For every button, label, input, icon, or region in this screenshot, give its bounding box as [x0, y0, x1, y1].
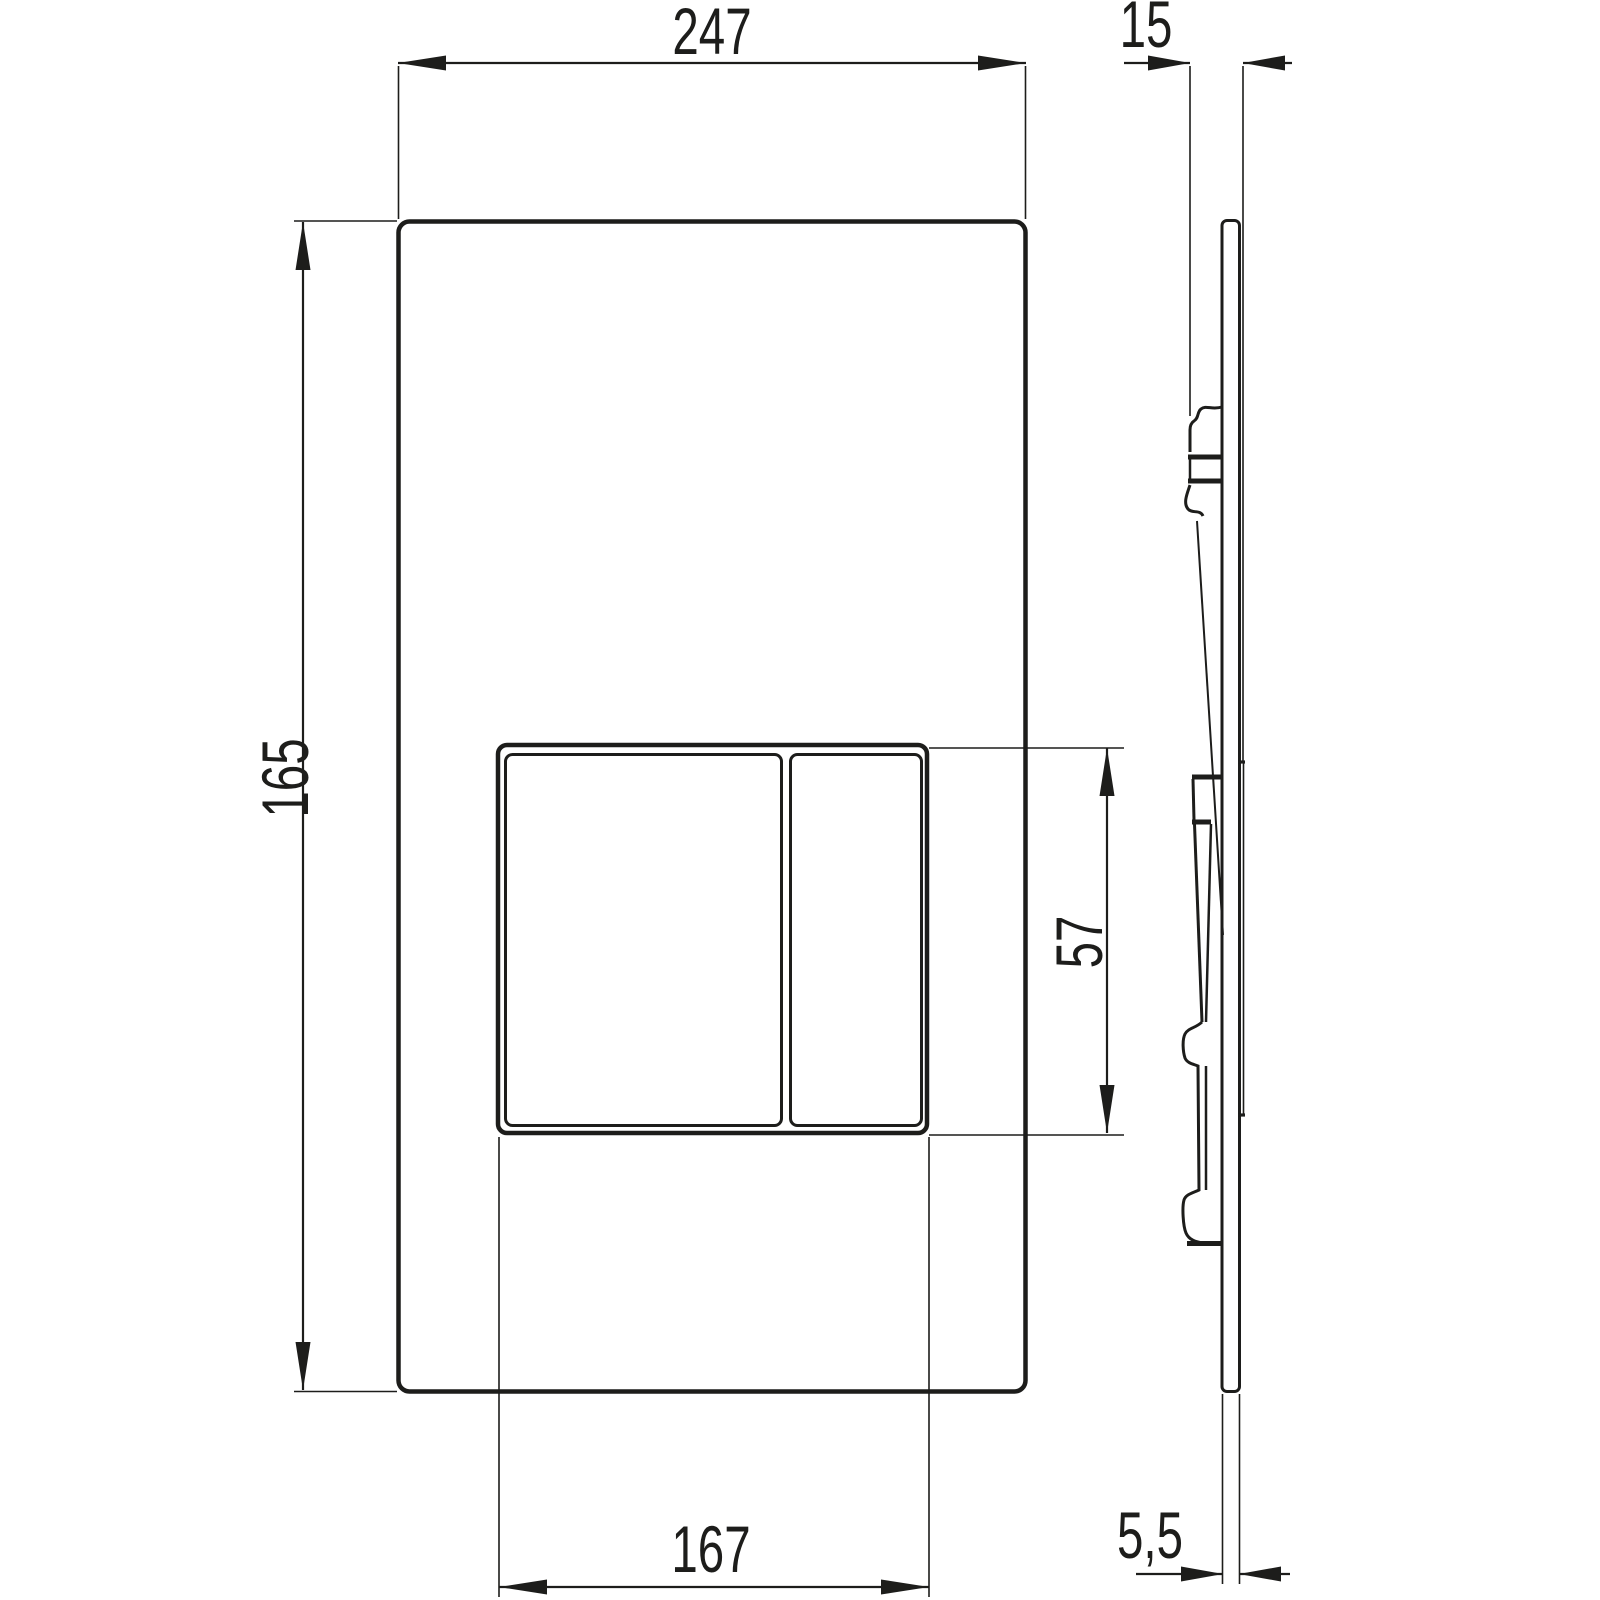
- dimension-plate-width: 247: [398, 0, 1026, 219]
- dimension-button-area-width: 167: [499, 1137, 929, 1597]
- button-recess-outline: [498, 745, 927, 1133]
- arrowhead-left: [499, 1580, 547, 1595]
- front-view: [399, 222, 1026, 1392]
- large-flush-button: [506, 755, 782, 1126]
- arrowhead-left: [398, 56, 446, 71]
- dimension-text-plate-thickness: 5,5: [1117, 1499, 1183, 1572]
- flush-plate-technical-drawing: 247 165 167 57 15: [0, 0, 1600, 1600]
- arrowhead-bottom: [1100, 1085, 1115, 1133]
- lower-mounting-bracket: [1183, 1022, 1222, 1244]
- dimension-plate-height: 165: [249, 221, 397, 1392]
- dimension-text-button-area-height: 57: [1043, 916, 1116, 969]
- dimension-text-plate-width: 247: [672, 0, 751, 69]
- side-view: [1183, 221, 1245, 1392]
- arrowhead-inward-right: [1243, 56, 1285, 71]
- arrowhead-right: [978, 56, 1026, 71]
- dimension-text-total-depth: 15: [1120, 0, 1173, 62]
- small-flush-button: [791, 755, 922, 1126]
- arrowhead-right: [881, 1580, 929, 1595]
- plate-outline: [399, 222, 1026, 1392]
- dimension-text-button-area-width: 167: [671, 1513, 750, 1586]
- arrowhead-bottom: [296, 1342, 311, 1390]
- arrowhead-top: [296, 222, 311, 270]
- dimension-text-plate-height: 165: [249, 738, 322, 817]
- arrowhead-inward-left: [1181, 1567, 1223, 1582]
- plate-slab-profile: [1222, 221, 1240, 1392]
- arrowhead-inward-right: [1239, 1567, 1281, 1582]
- upper-mounting-clip: [1186, 407, 1223, 935]
- arrowhead-top: [1100, 748, 1115, 796]
- dimension-plate-thickness: 5,5: [1117, 1394, 1290, 1584]
- middle-mounting-clip: [1192, 777, 1222, 1022]
- drawing-canvas: 247 165 167 57 15: [0, 0, 1600, 1600]
